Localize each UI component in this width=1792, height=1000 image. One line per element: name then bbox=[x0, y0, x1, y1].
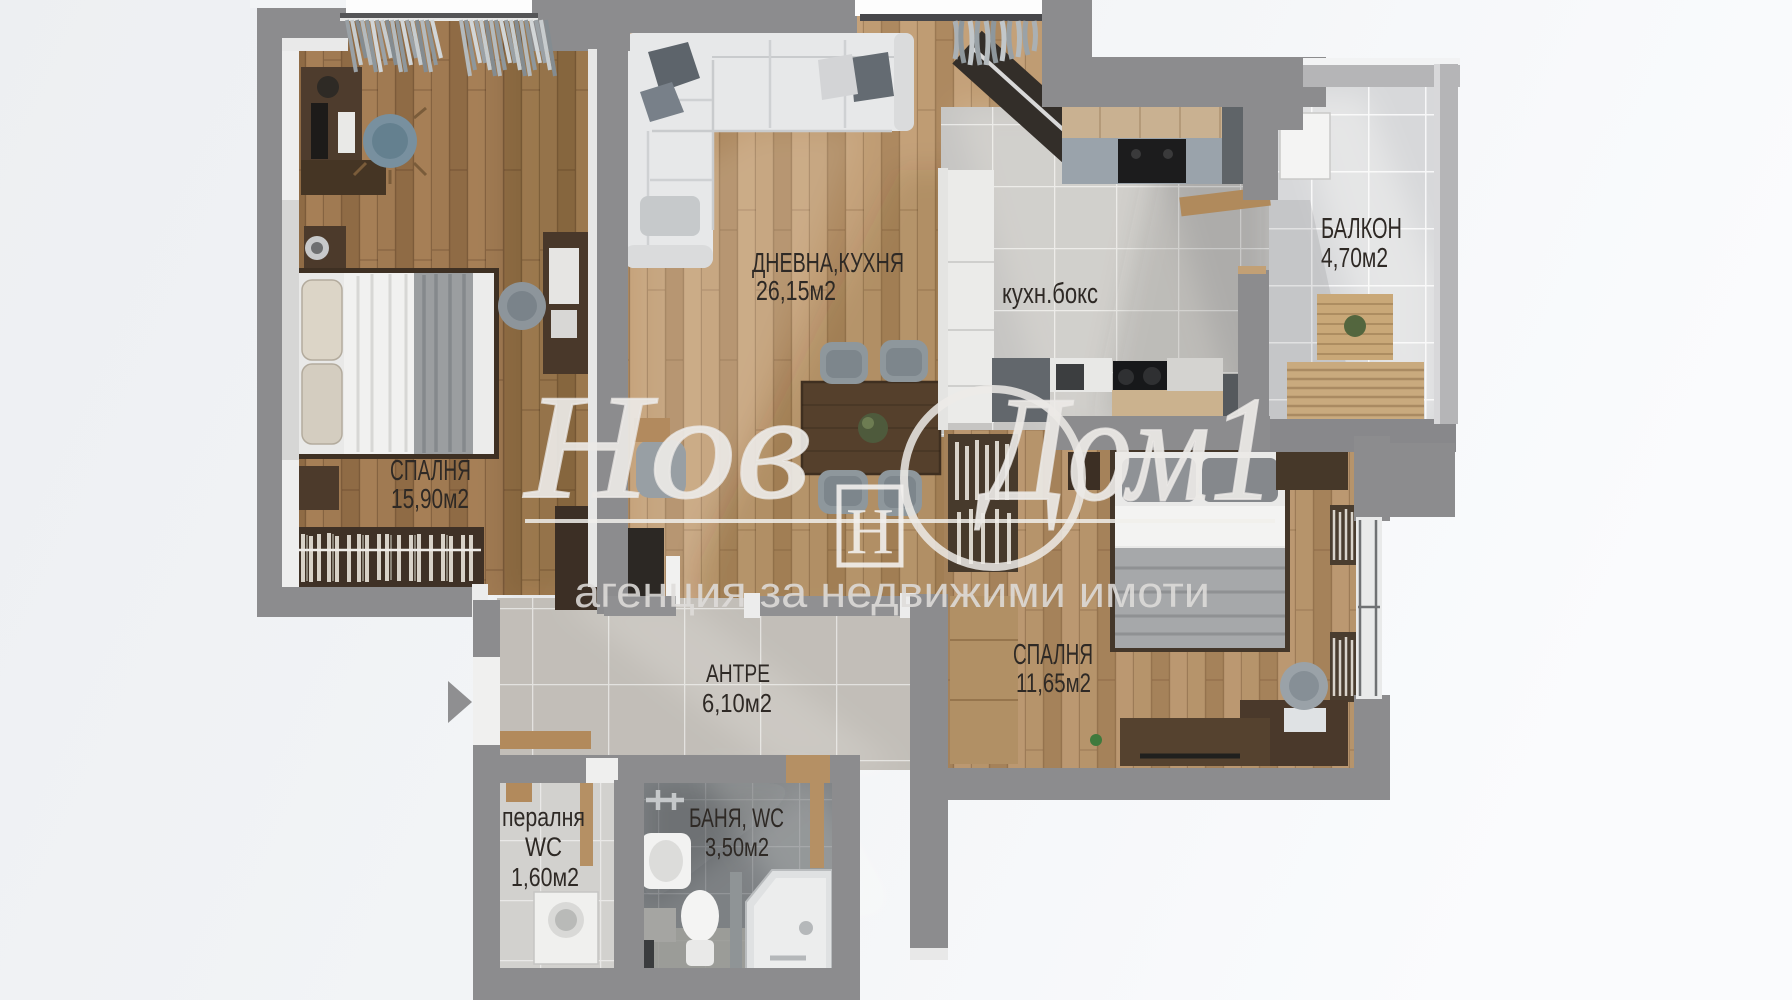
svg-text:Нов: Нов bbox=[523, 364, 811, 530]
svg-text:11,65м2: 11,65м2 bbox=[1016, 668, 1091, 698]
svg-text:ДНЕВНА,КУХНЯ: ДНЕВНА,КУХНЯ bbox=[752, 247, 904, 278]
svg-text:Дом1: Дом1 bbox=[975, 366, 1275, 532]
svg-text:4,70м2: 4,70м2 bbox=[1321, 242, 1388, 273]
svg-text:15,90м2: 15,90м2 bbox=[391, 483, 469, 514]
svg-text:БАНЯ, WC: БАНЯ, WC bbox=[689, 803, 784, 833]
svg-text:кухн.бокс: кухн.бокс bbox=[1002, 278, 1098, 310]
svg-text:1,60м2: 1,60м2 bbox=[511, 862, 579, 892]
svg-text:СПАЛНЯ: СПАЛНЯ bbox=[1013, 639, 1093, 671]
svg-text:WC: WC bbox=[525, 832, 562, 862]
svg-text:пералня: пералня bbox=[502, 802, 585, 832]
svg-text:агенция за недвижими имоти: агенция за недвижими имоти bbox=[574, 568, 1210, 617]
svg-text:АНТРЕ: АНТРЕ bbox=[706, 660, 770, 688]
svg-text:H: H bbox=[846, 495, 894, 568]
svg-text:3,50м2: 3,50м2 bbox=[705, 832, 769, 862]
svg-text:6,10м2: 6,10м2 bbox=[702, 688, 772, 718]
svg-text:26,15м2: 26,15м2 bbox=[756, 275, 836, 306]
svg-text:БАЛКОН: БАЛКОН bbox=[1321, 213, 1402, 245]
